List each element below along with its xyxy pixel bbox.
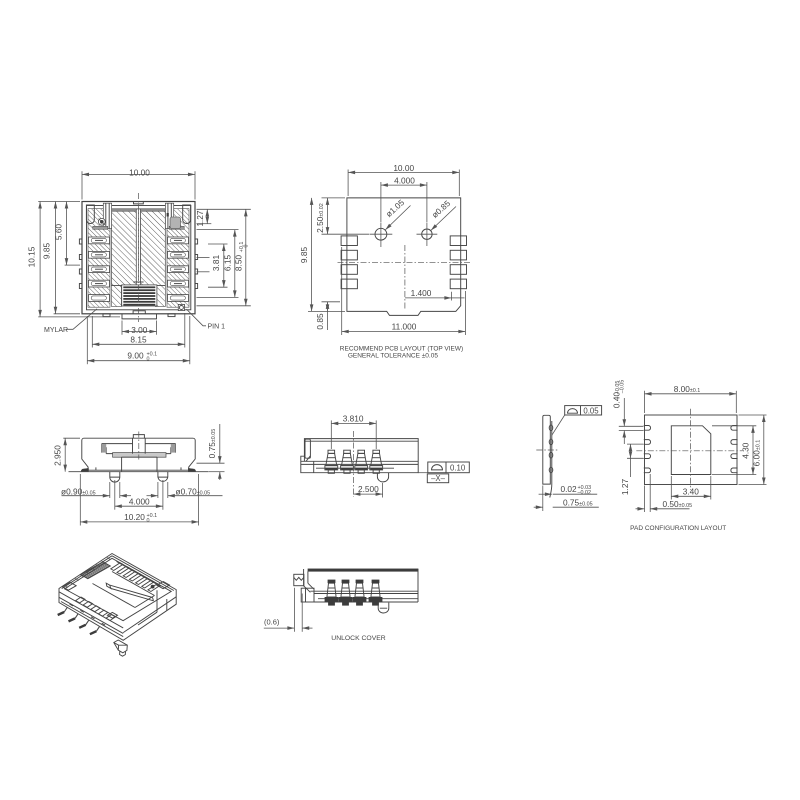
svg-text:–0.02: –0.02 (578, 490, 592, 496)
svg-text:3.810: 3.810 (343, 413, 364, 423)
svg-text:0.05: 0.05 (583, 406, 599, 415)
svg-text:GENERAL TOLERANCE ±0.05: GENERAL TOLERANCE ±0.05 (348, 353, 439, 360)
svg-text:MYLAR: MYLAR (44, 327, 68, 334)
svg-text:9.85: 9.85 (299, 247, 309, 264)
svg-text:3.40: 3.40 (683, 486, 700, 496)
svg-text:0: 0 (243, 245, 249, 248)
svg-text:8.50: 8.50 (234, 255, 244, 272)
svg-text:10.00: 10.00 (393, 163, 414, 173)
svg-text:9.85: 9.85 (42, 243, 52, 260)
svg-text:0.10: 0.10 (450, 464, 466, 473)
svg-text:5.60: 5.60 (54, 224, 64, 241)
svg-text:11.000: 11.000 (392, 322, 417, 332)
svg-text:0.85: 0.85 (315, 313, 325, 330)
svg-text:1.400: 1.400 (411, 288, 432, 298)
svg-text:0: 0 (147, 357, 150, 363)
svg-text:9.00: 9.00 (127, 351, 144, 361)
svg-text:4.000: 4.000 (129, 496, 150, 506)
svg-text:4.30: 4.30 (741, 442, 751, 459)
svg-text:–X–: –X– (431, 474, 446, 483)
svg-text:2.950: 2.950 (53, 445, 63, 466)
svg-text:10.00: 10.00 (129, 167, 150, 177)
svg-text:PIN 1: PIN 1 (208, 324, 226, 331)
svg-text:4.000: 4.000 (394, 175, 415, 185)
svg-text:2.500: 2.500 (358, 484, 379, 494)
svg-text:0: 0 (147, 518, 150, 524)
svg-text:1.27: 1.27 (620, 479, 630, 496)
svg-text:6.15: 6.15 (222, 255, 232, 272)
svg-text:PAD CONFIGURATION LAYOUT: PAD CONFIGURATION LAYOUT (630, 525, 726, 532)
svg-text:3.81: 3.81 (211, 255, 221, 272)
svg-text:RECOMMEND PCB LAYOUT (TOP VIEW: RECOMMEND PCB LAYOUT (TOP VIEW) (340, 345, 463, 352)
svg-text:0.02: 0.02 (561, 484, 578, 494)
svg-text:–0.05: –0.05 (620, 380, 626, 394)
svg-text:(0.6): (0.6) (264, 618, 280, 627)
svg-text:UNLOCK COVER: UNLOCK COVER (331, 635, 385, 642)
svg-text:1.27: 1.27 (195, 210, 205, 227)
svg-text:10.15: 10.15 (26, 246, 36, 267)
svg-text:10.20: 10.20 (124, 512, 145, 522)
svg-text:8.15: 8.15 (130, 334, 147, 344)
